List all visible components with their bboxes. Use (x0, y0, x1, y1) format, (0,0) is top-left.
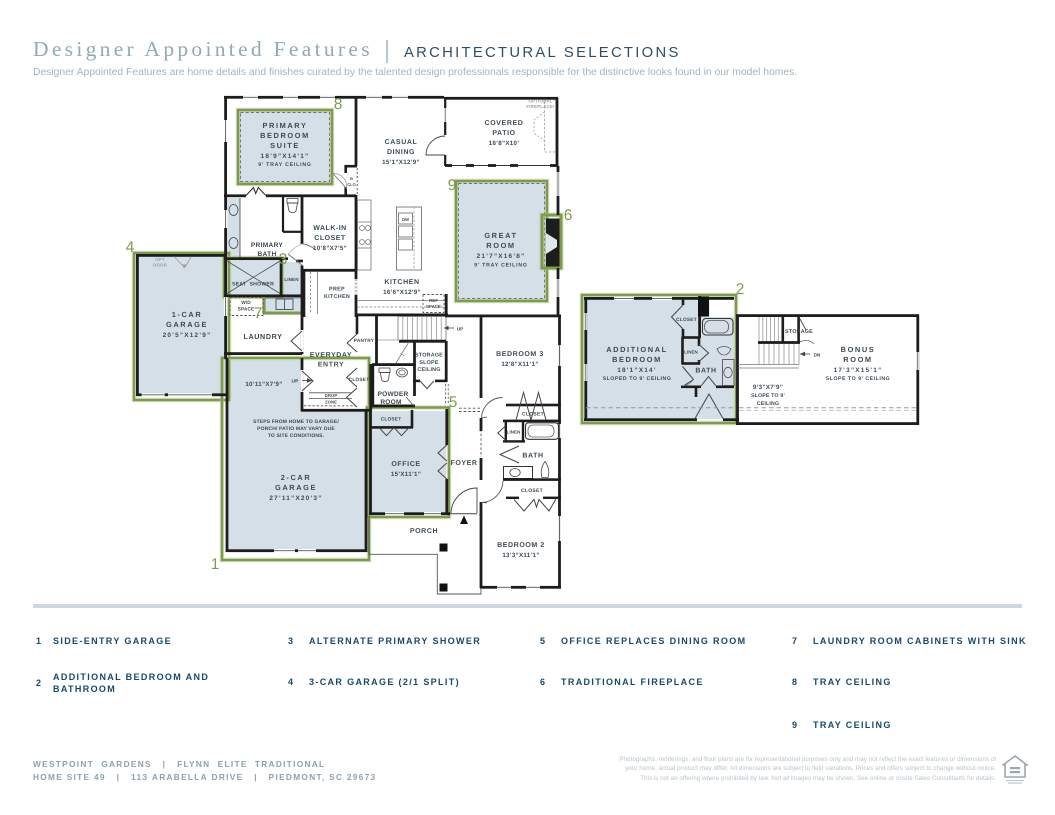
svg-text:BEDROOM 3: BEDROOM 3 (496, 351, 544, 358)
svg-text:ADDITIONAL: ADDITIONAL (606, 345, 668, 354)
svg-text:BONUS: BONUS (841, 345, 876, 354)
svg-text:STORAGE: STORAGE (785, 329, 813, 335)
svg-text:18’1”X14’: 18’1”X14’ (617, 367, 657, 374)
svg-text:2-CAR: 2-CAR (281, 473, 312, 482)
svg-text:OFFICE: OFFICE (391, 461, 420, 468)
svg-text:LAUNDRY: LAUNDRY (243, 332, 282, 341)
svg-text:CLOSET: CLOSET (349, 377, 370, 383)
svg-text:B: B (350, 176, 353, 181)
svg-text:SUITE: SUITE (270, 141, 300, 150)
svg-text:UP: UP (457, 326, 464, 331)
svg-text:BATH: BATH (695, 368, 716, 375)
svg-text:STEPS FROM HOME TO GARAGE/: STEPS FROM HOME TO GARAGE/ (253, 419, 339, 425)
svg-text:CLOSET: CLOSET (676, 317, 697, 323)
svg-text:REF: REF (429, 298, 438, 303)
svg-text:EVERYDAY: EVERYDAY (310, 352, 352, 359)
svg-text:SPACE: SPACE (238, 307, 255, 313)
svg-text:9’3”X7’9”: 9’3”X7’9” (753, 384, 783, 391)
svg-text:LINEN: LINEN (684, 350, 698, 355)
svg-text:CLOSET: CLOSET (521, 488, 543, 494)
svg-text:OPTIONAL: OPTIONAL (528, 99, 552, 104)
svg-text:5: 5 (449, 394, 458, 411)
svg-text:17’3”X15’1”: 17’3”X15’1” (834, 367, 883, 374)
svg-text:BEDROOM 2: BEDROOM 2 (497, 542, 545, 549)
svg-text:PANTRY: PANTRY (354, 338, 375, 344)
svg-text:COVERED: COVERED (485, 120, 524, 127)
svg-text:CLO: CLO (347, 182, 355, 187)
svg-text:DINING: DINING (387, 149, 415, 156)
svg-text:12’8”X11’1”: 12’8”X11’1” (501, 361, 538, 368)
svg-text:FIREPLACE!: FIREPLACE! (526, 104, 555, 109)
svg-text:KITCHEN: KITCHEN (324, 294, 350, 300)
svg-text:SLOPED TO 9’ CEILING: SLOPED TO 9’ CEILING (603, 376, 672, 382)
svg-text:ROOM: ROOM (843, 355, 872, 364)
svg-text:DN: DN (814, 353, 821, 358)
svg-text:PORCH: PORCH (410, 528, 438, 535)
svg-text:9’ TRAY CEILING: 9’ TRAY CEILING (474, 263, 528, 269)
svg-text:10’8”X7’5”: 10’8”X7’5” (313, 245, 347, 252)
svg-text:SLOPE: SLOPE (419, 360, 438, 366)
svg-text:10’11”X7’9”: 10’11”X7’9” (245, 381, 282, 388)
svg-text:WALK-IN: WALK-IN (313, 225, 346, 232)
svg-text:8: 8 (334, 96, 343, 113)
svg-text:PORCH/ PATIO MAY VARY DUE: PORCH/ PATIO MAY VARY DUE (257, 426, 335, 432)
svg-text:4: 4 (126, 239, 135, 256)
svg-text:ENTRY: ENTRY (318, 362, 344, 369)
svg-text:POWDER: POWDER (378, 391, 409, 398)
svg-text:SLOPE TO 9’ CEILING: SLOPE TO 9’ CEILING (826, 376, 891, 382)
svg-text:GREAT: GREAT (484, 231, 517, 240)
svg-text:CEILING: CEILING (757, 401, 779, 407)
svg-text:9: 9 (448, 177, 457, 194)
svg-text:CLOSET: CLOSET (522, 412, 544, 418)
svg-text:PRIMARY: PRIMARY (262, 121, 307, 130)
svg-text:PATIO: PATIO (492, 130, 515, 137)
svg-text:18’9”X14’1”: 18’9”X14’1” (261, 153, 310, 160)
svg-text:CEILING: CEILING (417, 367, 440, 373)
svg-text:ROOM: ROOM (486, 241, 515, 250)
svg-text:FOYER: FOYER (450, 460, 477, 467)
svg-text:DOOR: DOOR (153, 263, 168, 268)
svg-text:1: 1 (211, 556, 220, 573)
svg-text:DW: DW (402, 217, 409, 222)
svg-text:15’1”X12’9”: 15’1”X12’9” (382, 159, 420, 166)
svg-text:BEDROOM: BEDROOM (612, 355, 662, 364)
svg-text:LINEN: LINEN (507, 430, 521, 435)
svg-text:16’6”X12’9”: 16’6”X12’9” (383, 289, 421, 296)
svg-text:20’5”X12’9”: 20’5”X12’9” (163, 332, 212, 339)
svg-text:13’3”X11’1”: 13’3”X11’1” (502, 552, 539, 559)
svg-text:BATH: BATH (522, 453, 543, 460)
svg-text:21’7”X16’8”: 21’7”X16’8” (477, 253, 526, 260)
svg-text:CLOSET: CLOSET (314, 235, 346, 242)
svg-text:1-CAR: 1-CAR (172, 310, 203, 319)
svg-text:15’X11’1”: 15’X11’1” (391, 471, 421, 478)
svg-text:UP: UP (291, 379, 299, 385)
svg-text:STORAGE: STORAGE (415, 353, 443, 359)
svg-text:PRIMARY: PRIMARY (251, 242, 284, 249)
svg-text:ROOM: ROOM (380, 399, 402, 406)
svg-text:SPACE: SPACE (426, 304, 441, 309)
svg-text:BEDROOM: BEDROOM (260, 131, 310, 140)
svg-text:GARAGE: GARAGE (166, 320, 208, 329)
svg-text:PREP: PREP (329, 287, 345, 293)
svg-text:CASUAL: CASUAL (385, 139, 418, 146)
svg-text:LINEN: LINEN (284, 277, 299, 282)
svg-text:9’ TRAY CEILING: 9’ TRAY CEILING (258, 162, 312, 168)
svg-text:6: 6 (564, 207, 573, 224)
svg-text:TO SITE CONDITIONS.: TO SITE CONDITIONS. (268, 433, 325, 439)
svg-text:DROP: DROP (325, 393, 338, 398)
svg-text:CLOSET: CLOSET (381, 417, 402, 423)
svg-text:W/D: W/D (241, 300, 251, 306)
svg-text:27’11”X20’3”: 27’11”X20’3” (269, 495, 322, 502)
svg-text:SEAT SHOWER: SEAT SHOWER (232, 282, 274, 288)
svg-text:2: 2 (736, 281, 745, 298)
svg-text:3: 3 (279, 251, 288, 268)
svg-text:BATH: BATH (257, 251, 276, 258)
svg-text:KITCHEN: KITCHEN (384, 279, 419, 286)
svg-text:16’8”X10’: 16’8”X10’ (489, 140, 520, 147)
svg-text:7: 7 (254, 305, 263, 322)
svg-text:ZONE: ZONE (325, 399, 337, 404)
svg-text:SLOPE TO 9’: SLOPE TO 9’ (751, 393, 785, 399)
svg-text:GARAGE: GARAGE (275, 483, 317, 492)
svg-text:OPT: OPT (155, 257, 165, 262)
